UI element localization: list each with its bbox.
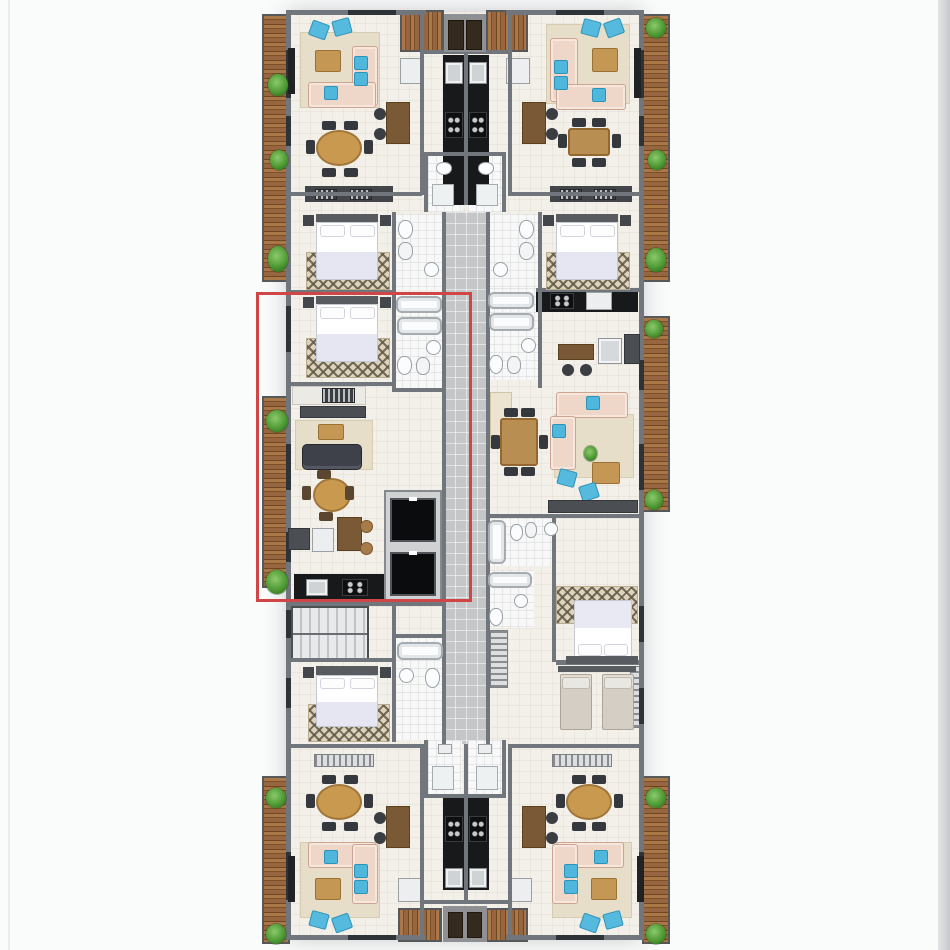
coffee-table [315,878,341,900]
entry-door-panel [448,20,464,50]
pillow [594,850,608,864]
plant [646,248,666,272]
chair [614,794,623,808]
pillow [554,76,568,90]
chair [344,775,358,784]
stool [562,364,574,376]
chair [344,168,358,177]
wall [508,192,642,196]
tv [288,856,295,902]
toilet [478,162,494,175]
pillow [324,86,338,100]
plant [645,490,663,510]
kitchen-sink [445,62,463,84]
sink [399,668,414,683]
stool [374,108,386,120]
wall [508,10,512,195]
bathtub [488,292,534,309]
coffee-table [592,48,618,72]
selected-unit-highlight [256,292,472,602]
bed-pillow [604,644,628,656]
toilet [510,524,523,541]
entry-door-panel [466,20,482,50]
wall [464,52,468,205]
tv [637,856,644,902]
pillow [552,424,566,438]
entry-door-panel [448,912,463,938]
wall [424,152,506,156]
window [556,935,604,940]
headboard [566,656,638,664]
bed-pillow [562,677,590,689]
chair [306,140,315,154]
dining-table [500,418,538,466]
window [639,360,644,390]
wall [486,212,490,744]
tv [634,48,641,98]
wall [420,900,512,904]
chair [491,435,500,449]
chair [592,775,606,784]
wall [394,634,444,638]
window [286,678,291,708]
chair [592,822,606,831]
pillow [564,880,578,894]
balcony-deck-top-center-right [486,10,528,52]
stool [546,108,558,120]
wall [424,794,506,798]
bidet [507,356,521,374]
chair [504,467,518,476]
chair [558,134,567,148]
bed-pillow [590,225,615,237]
chair [322,168,336,177]
window [639,116,644,146]
plant [584,446,597,461]
plant [268,74,288,96]
chair [344,121,358,130]
plant [270,150,288,170]
coffee-table [315,50,341,72]
chair [322,822,336,831]
wall [288,192,422,196]
headboard [316,214,378,222]
bed-pillow [350,225,375,237]
window [639,606,644,642]
toilet [489,355,503,374]
wall [424,155,428,212]
plant [266,788,286,808]
breakfast-bar [522,102,546,144]
balcony-deck-top-right [642,14,670,282]
toilet [436,162,452,175]
sink [544,522,558,536]
plant [645,320,663,338]
staircase [291,606,369,660]
plant [266,924,286,944]
chair [592,118,606,127]
stool [546,128,558,140]
chair [521,408,535,417]
pillow [354,864,368,878]
sink [424,262,439,277]
bed-pillow [350,678,375,689]
tv-cabinet [548,500,638,513]
window [348,10,396,15]
sink [478,744,492,754]
wall [392,606,396,742]
chair [521,467,535,476]
bidet [525,522,537,538]
stool [546,832,558,844]
sink [438,744,452,754]
wall [508,748,512,938]
window [639,688,644,724]
nightstand [620,215,631,226]
breakfast-bar [386,806,410,848]
wall [464,744,468,900]
coffee-table [591,878,617,900]
bidet [519,242,534,260]
wall [288,602,446,606]
window [348,935,396,940]
wall [424,740,428,796]
pillow [354,56,368,70]
stool [580,364,592,376]
plant [268,246,288,272]
sink [521,338,536,353]
pillow [586,396,600,410]
floor-plan [0,0,950,950]
balcony-deck-mid-right [642,316,670,512]
laundry [490,630,508,688]
toilet [398,220,413,239]
wall [538,212,542,292]
nightstand [380,215,391,226]
bathtub [397,642,443,660]
stove [445,816,463,842]
plant [646,18,666,38]
kitchen-sink [586,292,612,310]
headboard [558,666,636,672]
wall [502,740,506,796]
plant [648,150,666,170]
pillow [354,880,368,894]
pillow [564,864,578,878]
toilet [425,668,440,688]
headboard [556,214,618,222]
bed-pillow [578,644,602,656]
window [639,444,644,490]
stool [546,812,558,824]
chair [612,134,621,148]
closet [314,754,374,767]
pillow [554,60,568,74]
shower [432,184,454,206]
kitchen-sink [469,62,487,84]
wall [486,514,642,518]
sink [493,262,508,277]
chair [572,822,586,831]
bed-pillow [320,678,345,689]
bed-pillow [560,225,585,237]
pillow [354,72,368,86]
chair [364,140,373,154]
chair [592,158,606,167]
plant [646,924,666,944]
toilet [489,608,503,626]
chair [556,794,565,808]
dining-table [566,784,612,820]
chair [364,794,373,808]
bathtub [489,313,534,331]
chair [504,408,518,417]
nightstand [303,667,314,678]
nightstand [303,215,314,226]
stove [469,112,487,138]
tv [288,48,295,94]
chair [322,775,336,784]
bathtub [488,520,506,564]
chair [344,822,358,831]
pillow [324,850,338,864]
screenshot-page [0,0,950,950]
coffee-table [592,462,620,484]
chair [306,794,315,808]
pillow [592,88,606,102]
nightstand [380,667,391,678]
plant [646,788,666,808]
chair [572,158,586,167]
sink [514,594,528,608]
wall [288,658,396,662]
wall [538,292,542,388]
window [286,610,291,638]
wall [288,744,424,748]
shower [476,184,498,206]
fridge [598,338,622,364]
stove [469,816,487,842]
bidet [398,242,413,260]
stool [374,832,386,844]
bed-pillow [604,677,632,689]
kitchen-sink [445,868,463,888]
entry-door-panel [467,912,482,938]
window [556,10,604,15]
stool [374,812,386,824]
closet [552,754,612,767]
dining-table [316,784,362,820]
chair [572,775,586,784]
wall [508,744,642,748]
cabinet [624,334,640,364]
breakfast-bar [386,102,410,144]
shower [432,766,454,790]
dining-table [316,130,362,166]
bathtub [488,572,532,588]
shower [476,766,498,790]
fridge [398,878,422,902]
bar-counter [558,344,594,360]
window [286,116,291,146]
stove [550,293,574,309]
breakfast-bar [522,806,546,848]
nightstand [543,215,554,226]
chair [539,435,548,449]
kitchen-sink [469,868,487,888]
stove [445,112,463,138]
chair [572,118,586,127]
wall [502,155,506,212]
dining-table [568,128,610,156]
headboard [316,666,378,675]
chair [322,121,336,130]
toilet [519,220,534,239]
bed-pillow [320,225,345,237]
stool [374,128,386,140]
